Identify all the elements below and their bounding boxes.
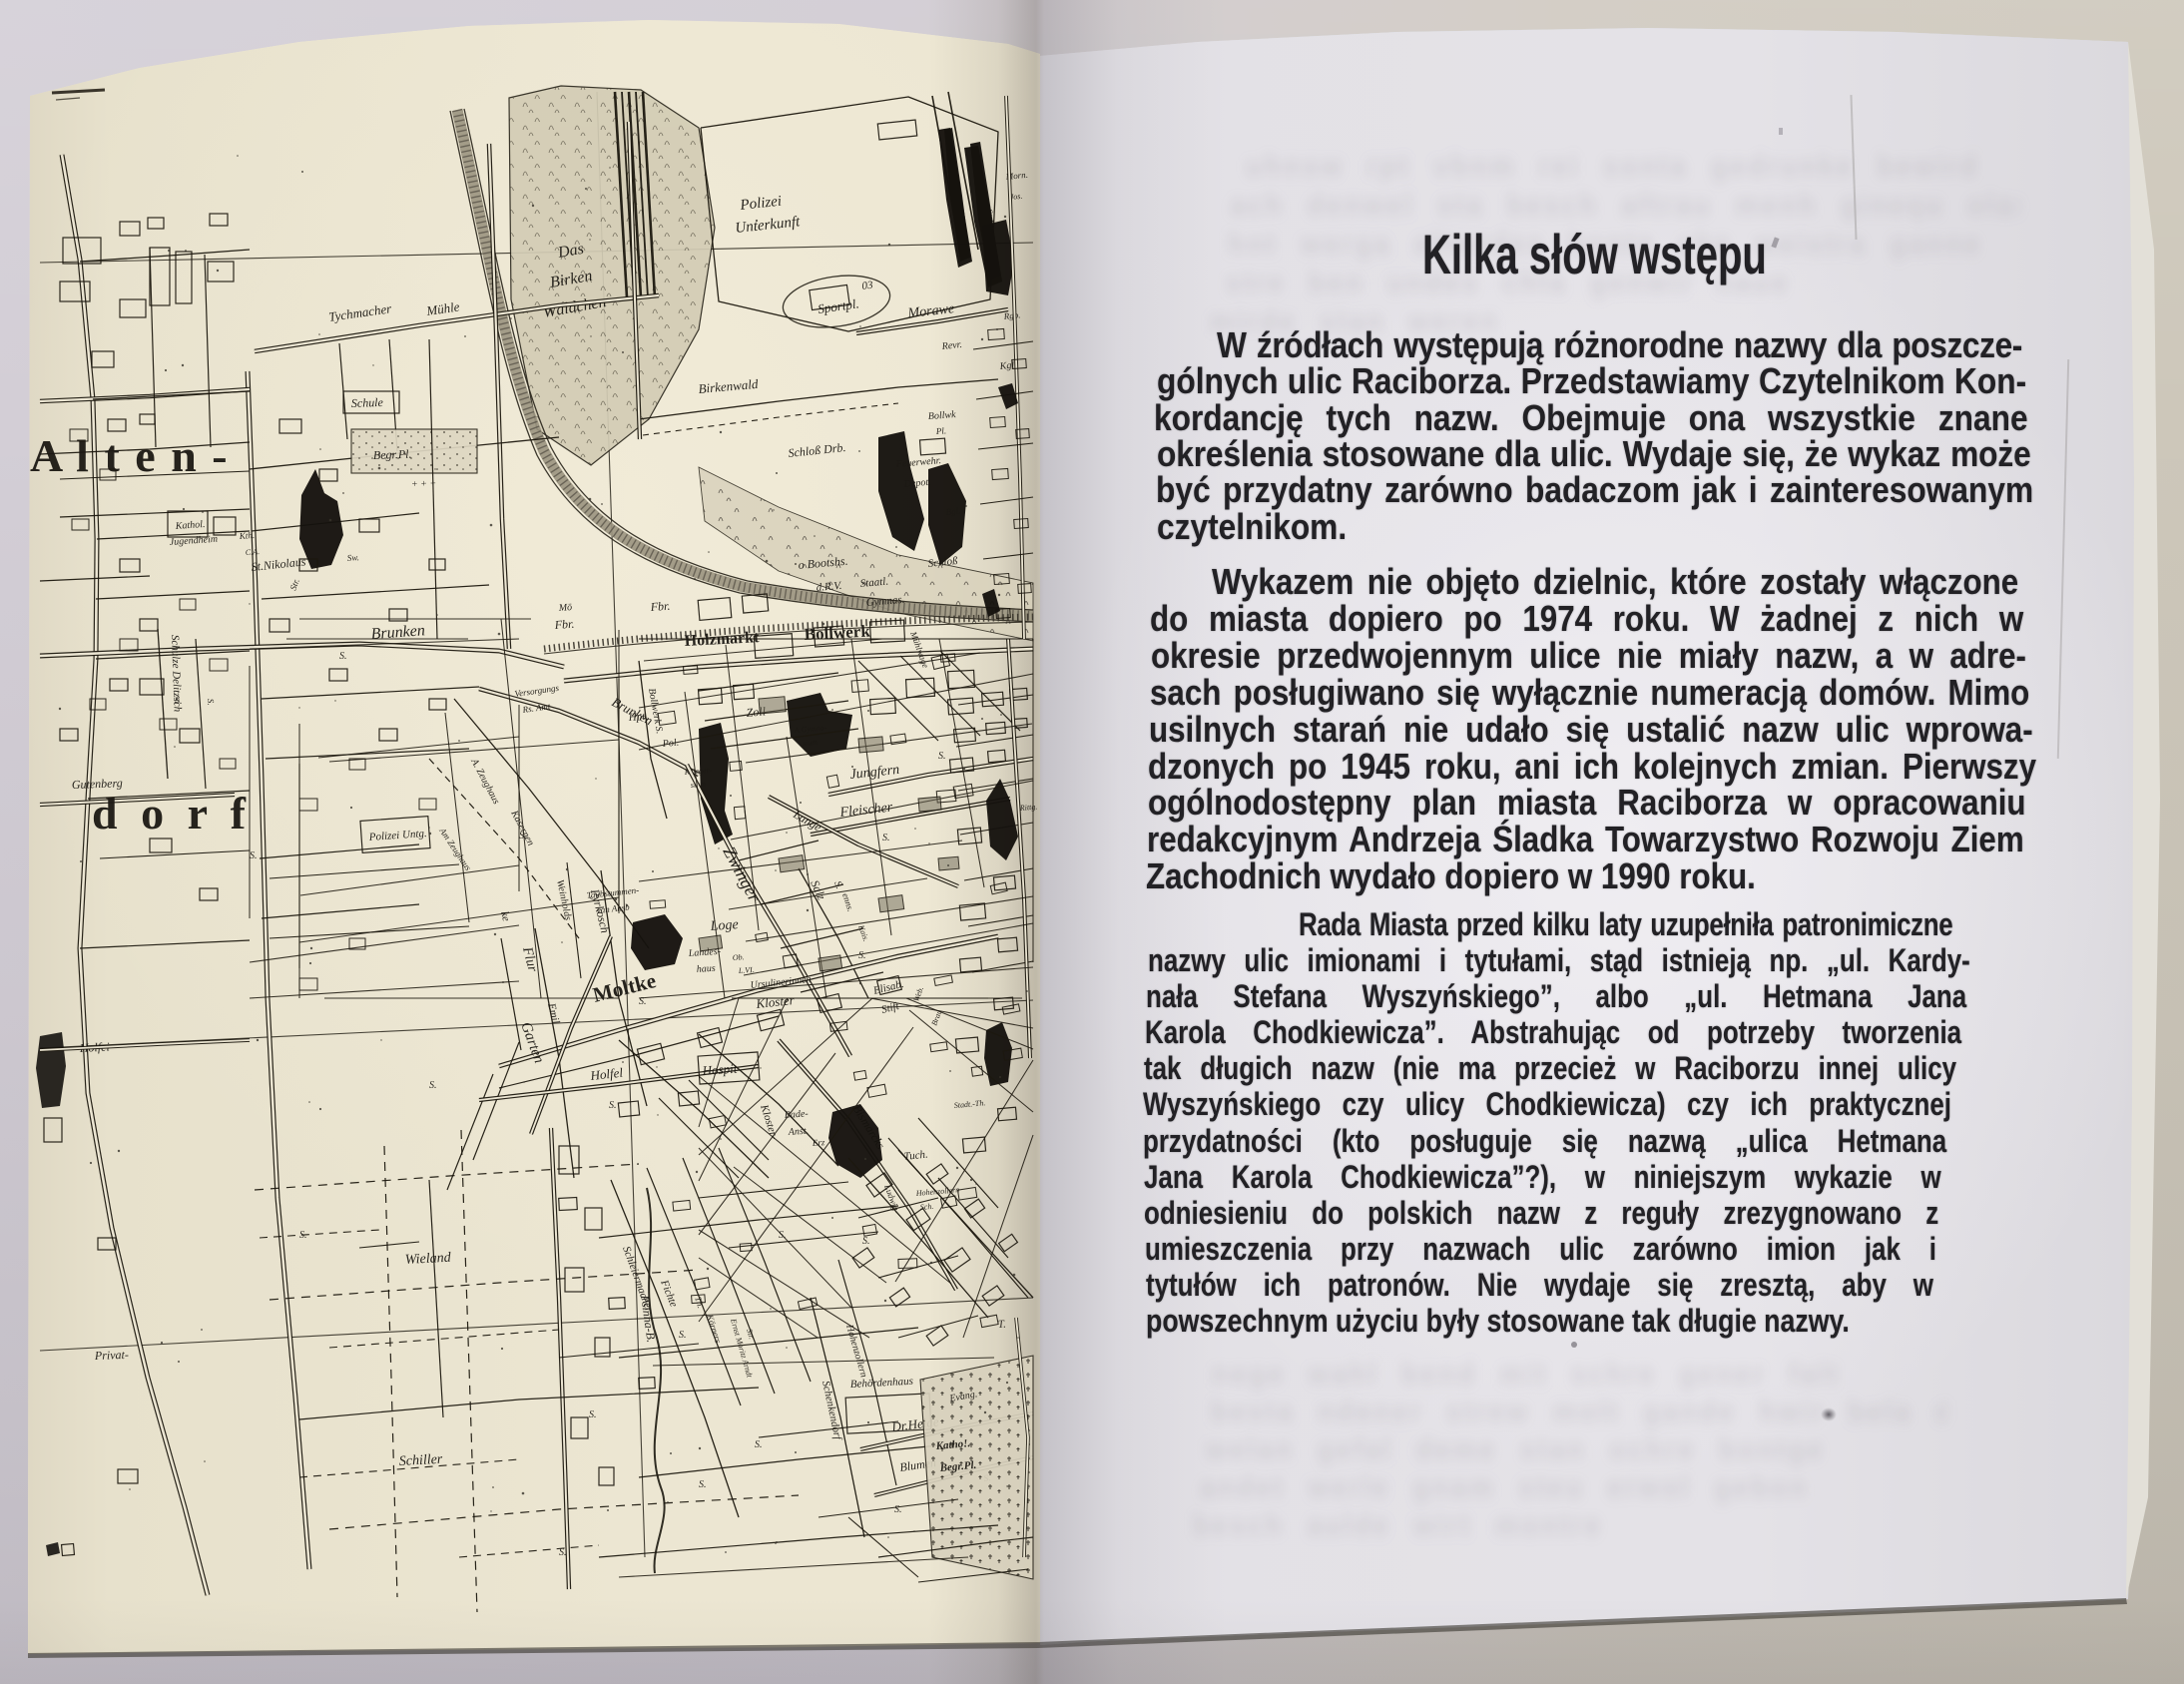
svg-text:Sportpl.: Sportpl. [817, 295, 859, 316]
svg-text:Polizei: Polizei [739, 194, 783, 214]
svg-text:S.: S. [250, 850, 258, 861]
svg-text:sium: sium [802, 738, 818, 748]
svg-text:S.: S. [858, 950, 866, 961]
svg-text:enns.: enns. [840, 892, 855, 913]
svg-text:Lange: Lange [791, 807, 824, 835]
svg-text:Str.: Str. [287, 577, 300, 591]
svg-text:Erz: Erz [811, 1137, 825, 1148]
svg-text:S.: S. [559, 1547, 567, 1558]
svg-text:Staatl.: Staatl. [859, 576, 888, 590]
svg-text:Loge: Loge [709, 917, 739, 934]
svg-text:Web.: Web. [911, 985, 925, 1003]
svg-text:C.A.: C.A. [246, 547, 261, 557]
svg-text:Unterkunft: Unterkunft [735, 214, 802, 237]
svg-text:S.: S. [429, 1080, 437, 1091]
svg-text:Ernst Moritz Arndt: Ernst Moritz Arndt [729, 1317, 755, 1380]
svg-text:Hpt.: Hpt. [627, 711, 648, 724]
svg-text:van Ansb: van Ansb [596, 902, 630, 915]
svg-text:Fbr.: Fbr. [553, 617, 575, 632]
svg-text:Zwinger: Zwinger [719, 842, 765, 905]
svg-text:A. Zeughaus: A. Zeughaus [468, 756, 502, 806]
svg-text:S.: S. [679, 1330, 687, 1341]
svg-text:haus: haus [696, 963, 716, 975]
svg-text:Mühle: Mühle [424, 298, 460, 318]
svg-text:S.: S. [609, 1100, 617, 1111]
svg-text:Bgl.: Bgl. [945, 506, 961, 517]
svg-text:Revr.: Revr. [940, 339, 962, 352]
svg-text:Rittg.: Rittg. [1018, 802, 1037, 813]
svg-text:Kloster: Kloster [755, 992, 797, 1011]
svg-text:Mö: Mö [557, 602, 572, 614]
svg-text:Sw.: Sw. [346, 552, 359, 563]
svg-text:S.: S. [779, 1230, 787, 1241]
svg-text:Sch.: Sch. [919, 1202, 933, 1212]
svg-text:Tychmacher: Tychmacher [327, 300, 393, 324]
svg-text:d.R.V.: d.R.V. [816, 580, 842, 594]
svg-text:Pl.: Pl. [934, 425, 946, 436]
svg-text:Versorgungs: Versorgungs [514, 683, 560, 699]
svg-text:T.: T. [998, 1319, 1007, 1331]
svg-text:03: 03 [861, 279, 874, 291]
svg-text:Körners: Körners [705, 1313, 724, 1346]
svg-text:St.Nikolaus: St.Nikolaus [251, 554, 306, 574]
svg-text:Stadt.-Th.: Stadt.-Th. [953, 1098, 985, 1110]
svg-text:Schenkendorf: Schenkendorf [819, 1380, 844, 1442]
svg-text:S.: S. [519, 831, 527, 842]
svg-text:S.: S. [755, 1439, 763, 1450]
svg-text:Holzmarkt: Holzmarkt [684, 629, 760, 650]
svg-text:Weinholds: Weinholds [554, 878, 573, 921]
svg-text:Str.: Str. [745, 1328, 757, 1341]
svg-text:Rgb.: Rgb. [1002, 309, 1021, 321]
svg-text:S.: S. [206, 699, 216, 706]
svg-text:S.: S. [831, 879, 844, 890]
svg-text:Schiller: Schiller [398, 1452, 443, 1469]
svg-text:S.: S. [639, 996, 647, 1007]
svg-text:ke: ke [498, 910, 512, 922]
svg-text:S.: S. [699, 1479, 707, 1490]
svg-text:Moltke: Moltke [590, 968, 658, 1007]
svg-text:S.: S. [894, 1504, 902, 1515]
svg-text:Polizei Untg.: Polizei Untg. [367, 828, 427, 843]
svg-text:Birkenwald: Birkenwald [698, 376, 760, 396]
svg-text:S.: S. [299, 1230, 307, 1241]
svg-text:S.: S. [339, 651, 347, 662]
svg-text:Ob.: Ob. [733, 952, 745, 962]
svg-text:Kathol.: Kathol. [174, 519, 205, 532]
svg-text:Holfel: Holfel [589, 1065, 624, 1083]
svg-text:Wieland: Wieland [404, 1251, 452, 1268]
svg-text:Bollwk: Bollwk [927, 409, 956, 422]
svg-text:Fleischer: Fleischer [838, 800, 894, 821]
svg-text:Anst.: Anst. [787, 1126, 809, 1138]
svg-text:Kloster-: Kloster- [758, 1102, 781, 1141]
svg-text:Brunken: Brunken [370, 622, 425, 643]
svg-text:Tuch.: Tuch. [903, 1149, 928, 1163]
svg-text:Hospit: Hospit [701, 1061, 738, 1078]
svg-text:Schule: Schule [351, 395, 384, 410]
svg-text:d o r f: d o r f [92, 788, 252, 839]
svg-text:Behördenhaus: Behördenhaus [850, 1376, 914, 1391]
svg-text:S.: S. [589, 1409, 597, 1420]
svg-text:Fbr.: Fbr. [649, 599, 671, 614]
svg-text:Kais.: Kais. [856, 923, 871, 943]
svg-text:Privat-: Privat- [94, 1348, 129, 1363]
svg-text:Emil: Emil [545, 1001, 562, 1025]
svg-text:Jugendheim: Jugendheim [169, 534, 218, 548]
svg-text:Schloß Drb.: Schloß Drb. [788, 440, 846, 460]
svg-text:S.: S. [175, 696, 183, 707]
svg-text:Begr.Pl.: Begr.Pl. [373, 447, 412, 462]
svg-text:Depot.: Depot. [902, 477, 931, 490]
svg-text:Mühlwage: Mühlwage [908, 629, 931, 669]
svg-text:S.: S. [882, 833, 890, 843]
svg-text:S.: S. [938, 751, 946, 762]
svg-text:S.: S. [862, 1236, 870, 1247]
svg-text:Bade-: Bade- [784, 1108, 809, 1121]
